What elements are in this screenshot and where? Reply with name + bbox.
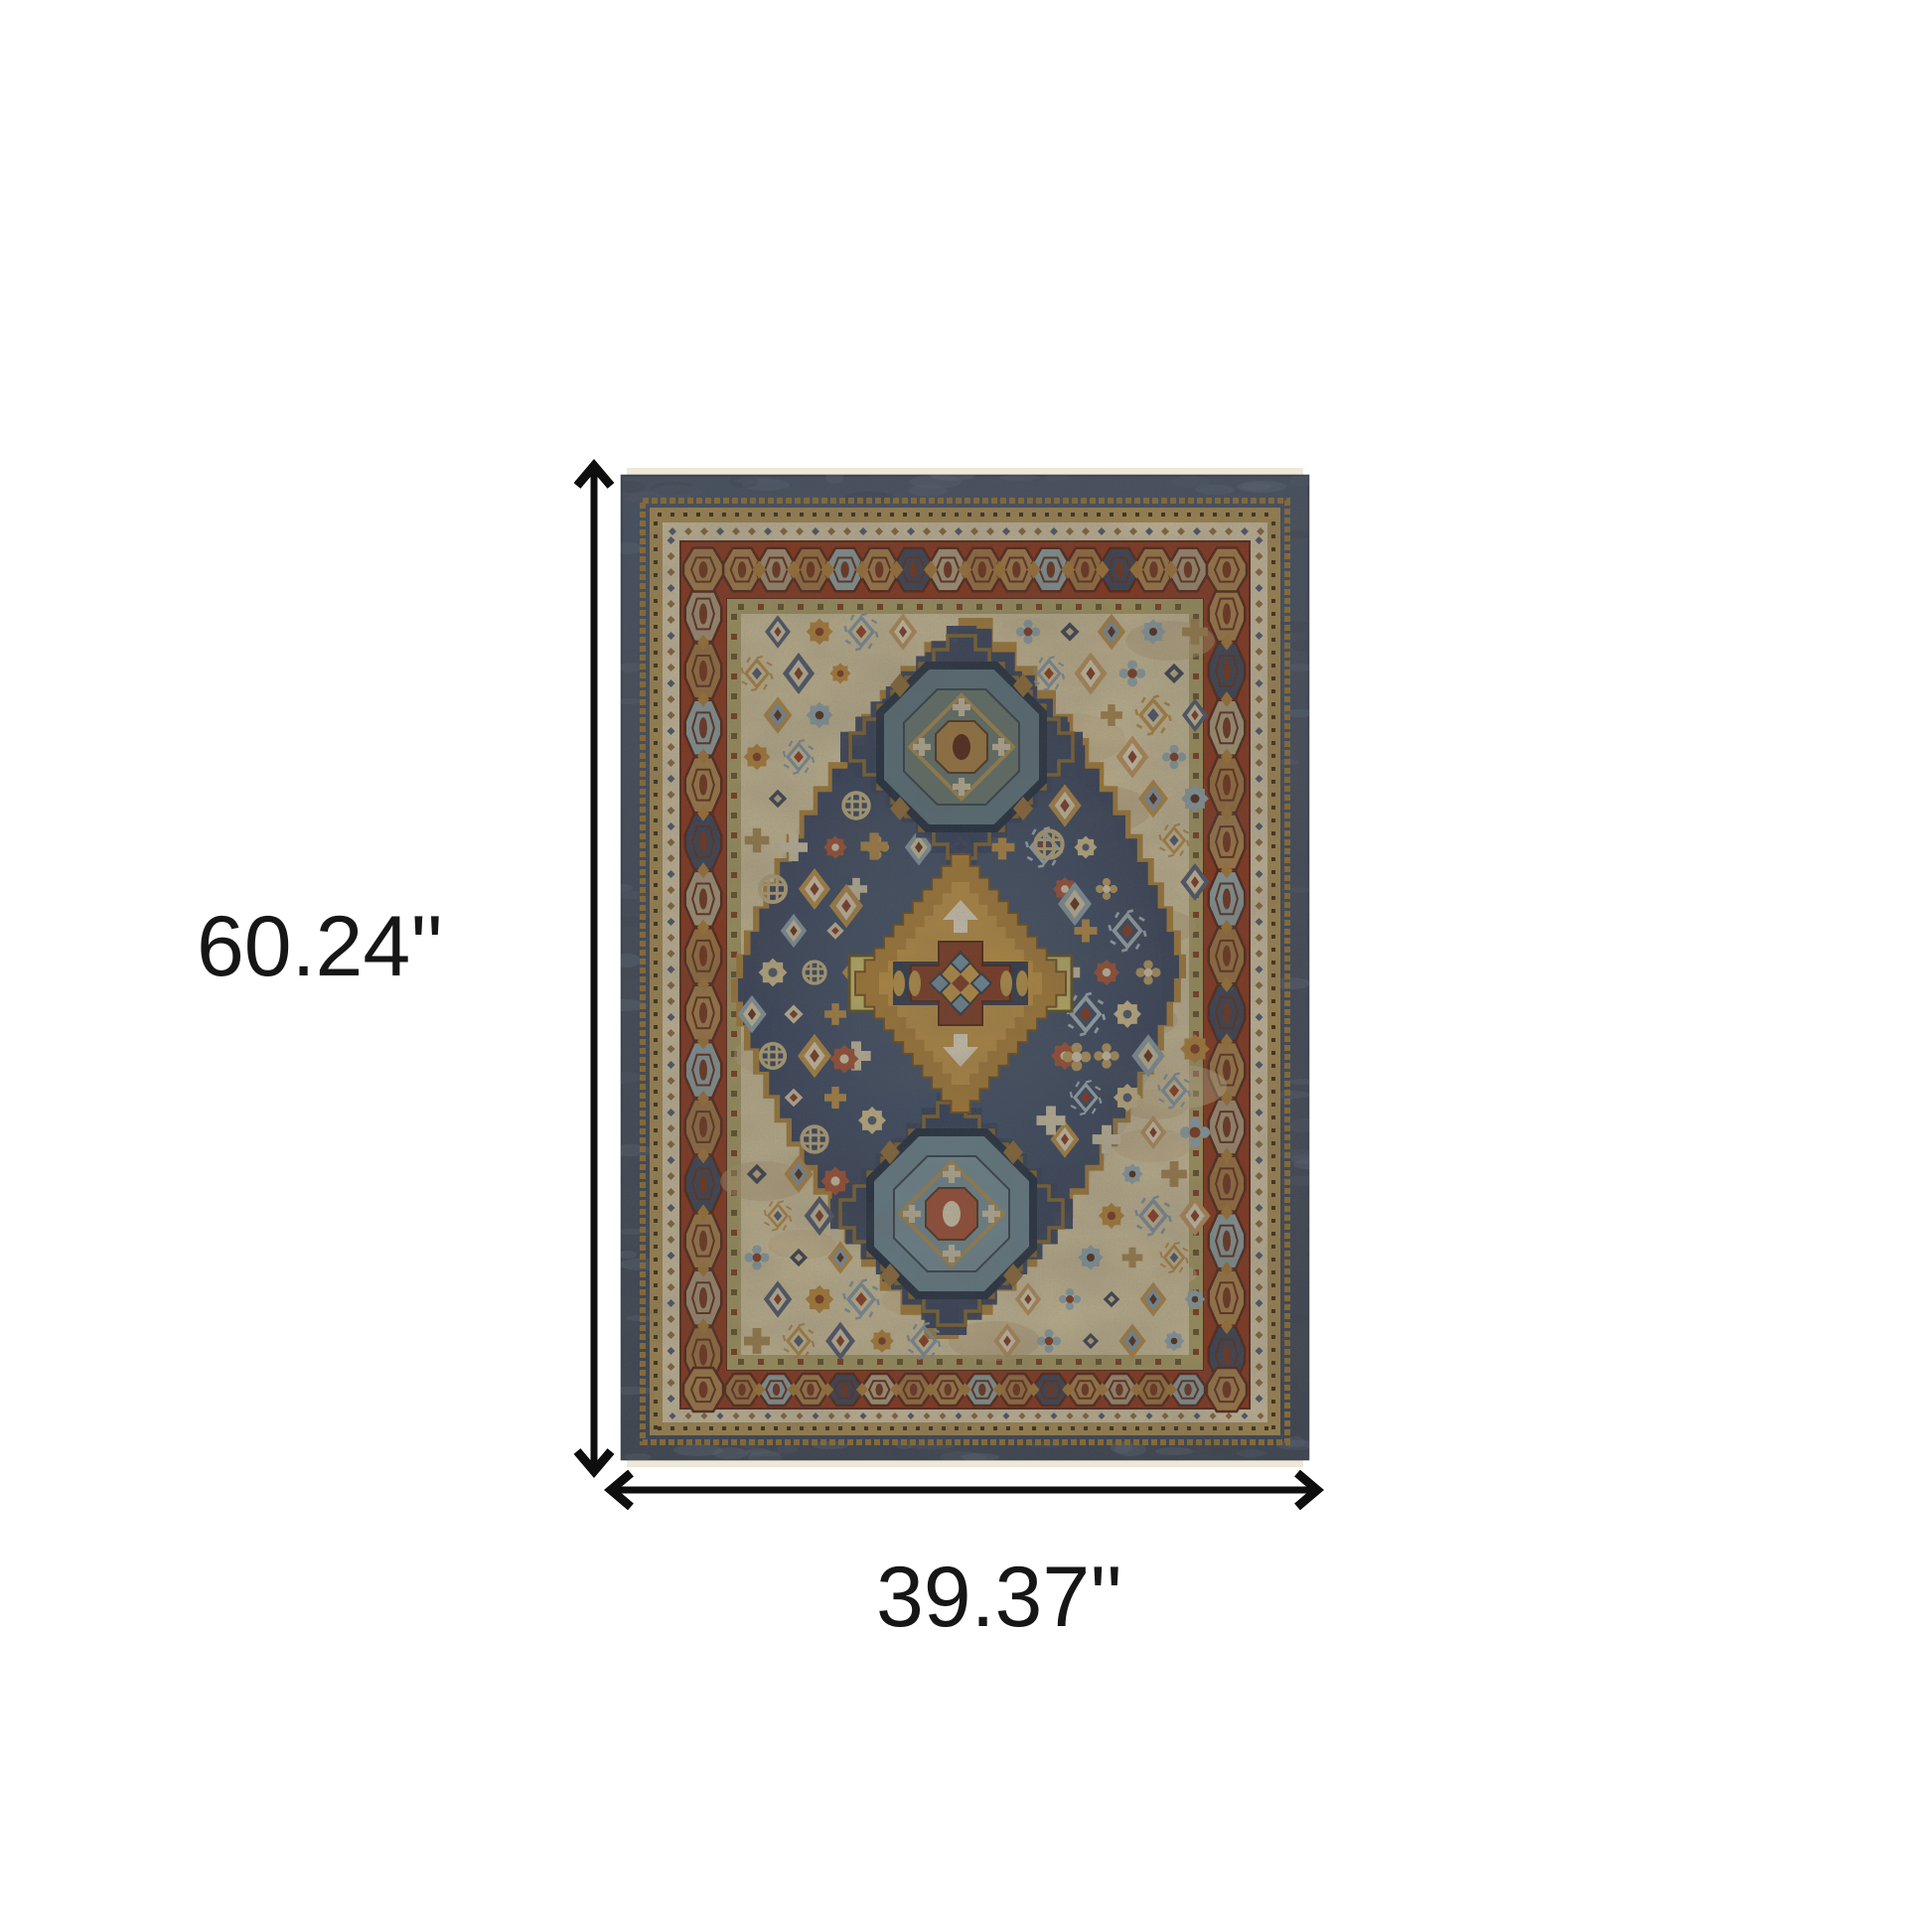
svg-text:39.37'': 39.37'' [876, 1550, 1122, 1645]
svg-text:60.24'': 60.24'' [197, 899, 443, 994]
